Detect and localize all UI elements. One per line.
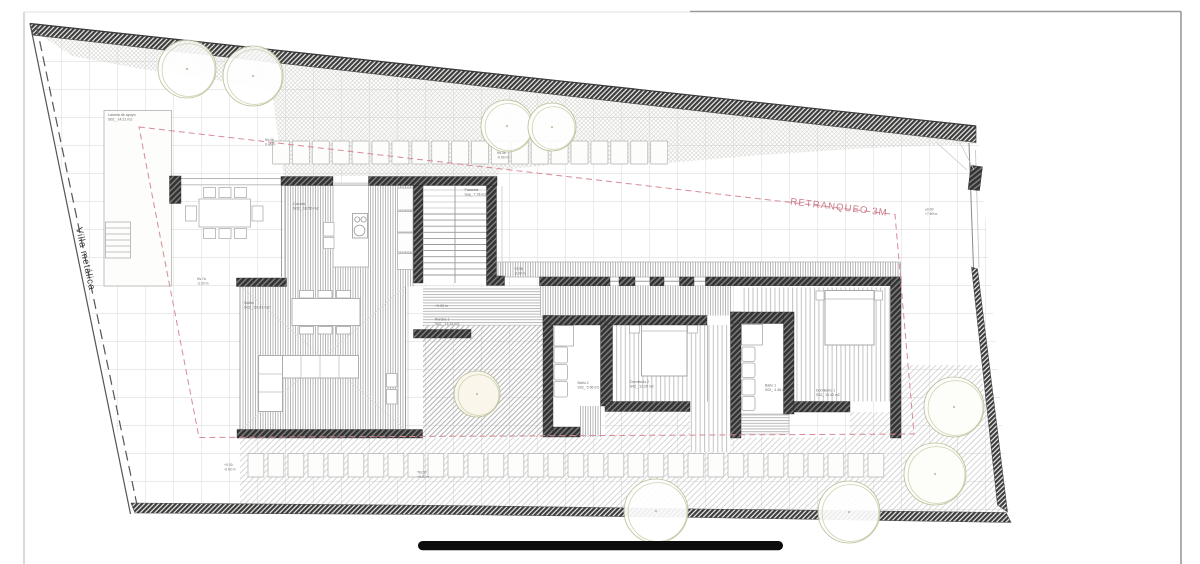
svg-text:Porche 1: Porche 1	[435, 318, 449, 322]
svg-text:S02_ 5.56 m2: S02_ 5.56 m2	[578, 385, 600, 389]
svg-text:+0.00 m: +0.00 m	[435, 304, 448, 308]
svg-text:0.46 m: 0.46 m	[265, 142, 276, 146]
svg-text:Nv.4b: Nv.4b	[497, 151, 506, 155]
svg-text:+0.00: +0.00	[224, 463, 233, 467]
svg-text:Nv.4b: Nv.4b	[265, 138, 274, 142]
svg-text:S02_ 29.61 m2: S02_ 29.61 m2	[244, 305, 270, 309]
svg-text:Baño 1: Baño 1	[765, 384, 776, 388]
svg-text:S02_ 10.42 m2: S02_ 10.42 m2	[816, 393, 840, 397]
svg-text:Pasarela: Pasarela	[465, 188, 479, 192]
svg-text:Lamela de apoyo: Lamela de apoyo	[108, 113, 136, 117]
svg-text:S02_ 13.33 m2: S02_ 13.33 m2	[435, 322, 459, 326]
svg-text:+7.80 m: +7.80 m	[925, 212, 938, 216]
svg-text:Nv.7a: Nv.7a	[197, 277, 206, 281]
svg-text:Dormitorio 1: Dormitorio 1	[816, 389, 835, 393]
svg-text:-0.92 m: -0.92 m	[224, 467, 236, 471]
svg-text:TECO: TECO	[417, 471, 427, 475]
svg-text:S02_ 12.20 m2: S02_ 12.20 m2	[630, 384, 654, 388]
svg-text:-2.02 m: -2.02 m	[197, 281, 209, 285]
svg-text:±0.00: ±0.00	[925, 208, 934, 212]
svg-text:S02_ 16.50 m2: S02_ 16.50 m2	[293, 206, 319, 210]
svg-text:+0.00 m: +0.00 m	[417, 475, 430, 479]
svg-text:Dormitorio 2: Dormitorio 2	[630, 380, 649, 384]
svg-text:S02_ 4.46 m2: S02_ 4.46 m2	[765, 388, 787, 392]
svg-text:Cocina: Cocina	[293, 202, 306, 206]
svg-text:Salón: Salón	[244, 301, 254, 305]
svg-text:-2.00 m: -2.00 m	[514, 271, 526, 275]
svg-text:-0.00 m: -0.00 m	[497, 155, 509, 159]
svg-text:+3.08: +3.08	[514, 267, 523, 271]
svg-text:Baño 2: Baño 2	[578, 381, 589, 385]
svg-text:Sup_ 7.78 m2: Sup_ 7.78 m2	[465, 192, 487, 196]
svg-text:S02_ 14.21 m2: S02_ 14.21 m2	[108, 117, 132, 121]
